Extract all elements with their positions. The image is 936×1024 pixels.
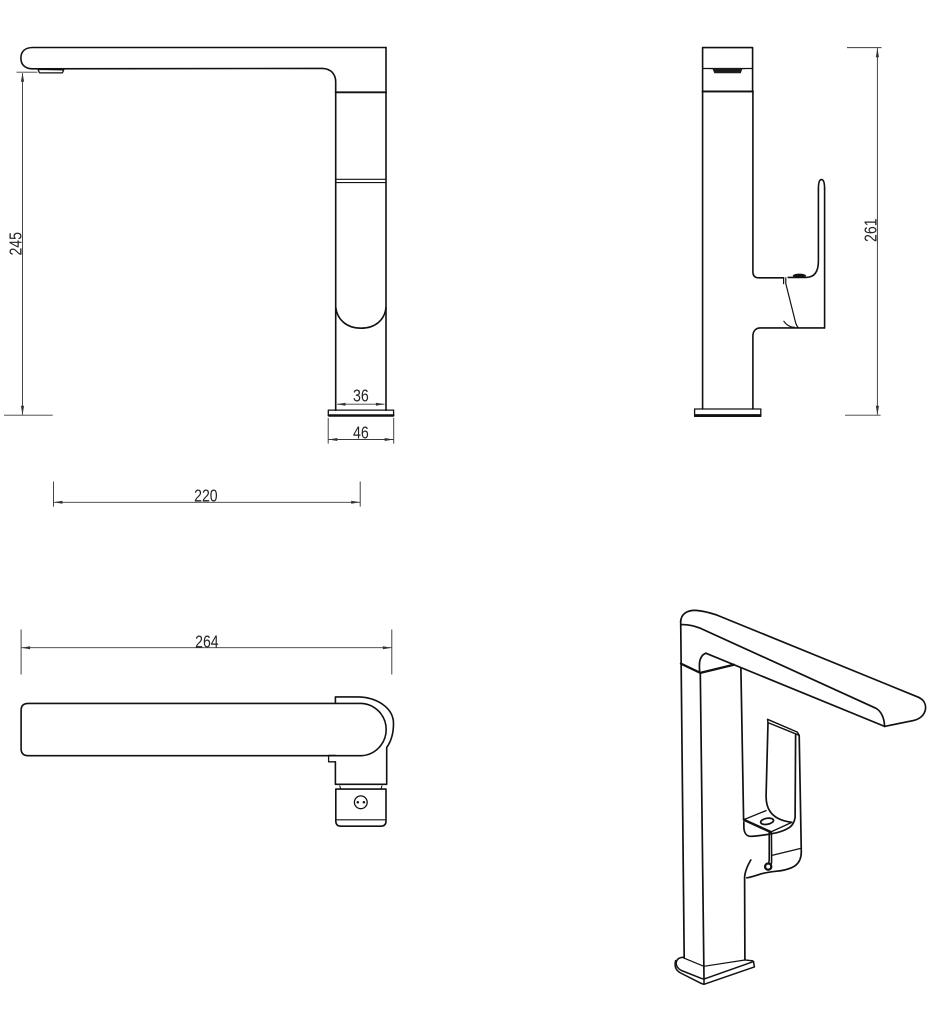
svg-text:36: 36	[353, 385, 369, 405]
svg-text:245: 245	[5, 232, 25, 256]
svg-text:264: 264	[195, 631, 219, 651]
svg-text:46: 46	[353, 423, 369, 443]
svg-text:261: 261	[860, 218, 880, 242]
svg-text:220: 220	[194, 486, 218, 506]
